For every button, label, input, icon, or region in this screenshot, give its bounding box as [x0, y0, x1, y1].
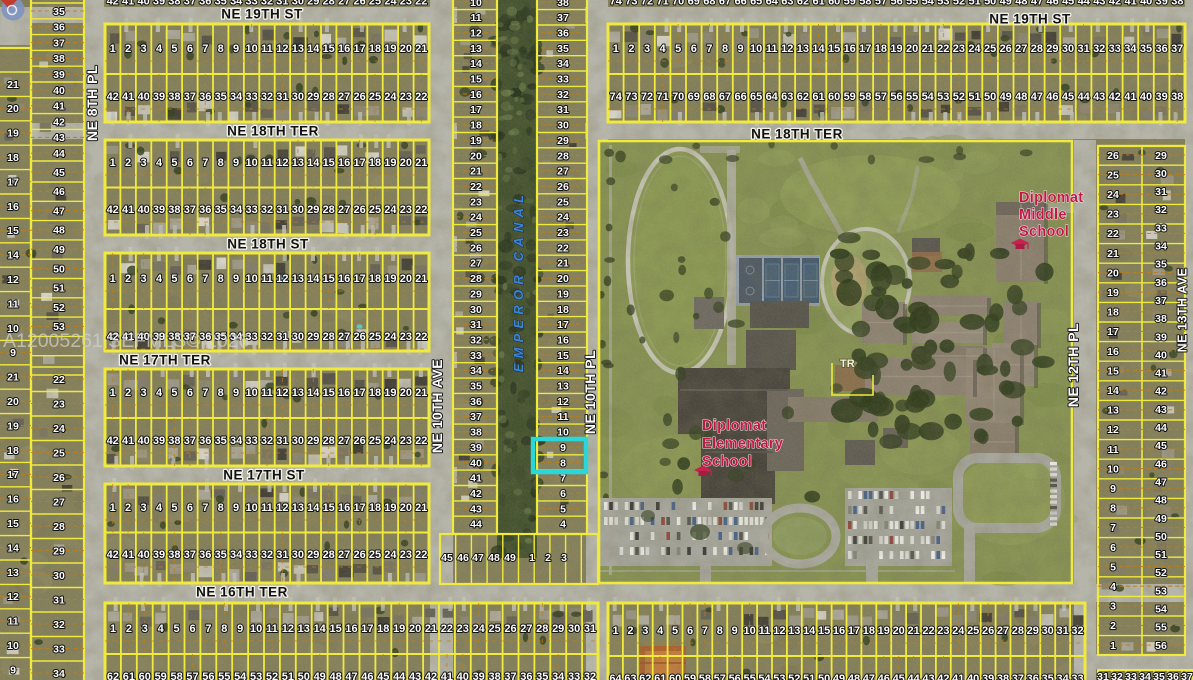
svg-text:11: 11	[261, 273, 273, 285]
svg-text:29: 29	[552, 623, 564, 635]
svg-text:9: 9	[738, 43, 744, 55]
svg-text:25: 25	[53, 447, 65, 459]
svg-text:15: 15	[818, 625, 830, 637]
svg-text:40: 40	[1140, 0, 1152, 8]
svg-text:16: 16	[345, 623, 357, 635]
svg-text:40: 40	[1155, 349, 1167, 361]
svg-text:21: 21	[415, 273, 427, 285]
svg-text:25: 25	[557, 196, 569, 208]
svg-text:50: 50	[984, 0, 996, 8]
svg-text:NE 17TH TER: NE 17TH TER	[119, 353, 211, 368]
svg-text:32: 32	[261, 91, 273, 103]
svg-text:4: 4	[657, 625, 664, 637]
svg-text:37: 37	[1012, 673, 1024, 680]
svg-text:4: 4	[156, 43, 163, 55]
svg-text:58: 58	[699, 673, 711, 680]
svg-text:34: 34	[53, 668, 65, 680]
svg-text:37: 37	[184, 204, 196, 216]
svg-text:45: 45	[441, 552, 453, 564]
svg-text:35: 35	[557, 43, 569, 55]
svg-text:12: 12	[470, 28, 482, 40]
svg-text:41: 41	[122, 435, 134, 447]
svg-text:18: 18	[7, 445, 19, 457]
svg-text:32: 32	[557, 89, 569, 101]
svg-text:39: 39	[470, 442, 482, 454]
svg-text:28: 28	[536, 623, 548, 635]
svg-text:24: 24	[384, 91, 397, 103]
svg-text:27: 27	[470, 258, 482, 270]
svg-text:17: 17	[353, 273, 365, 285]
svg-text:12: 12	[1107, 424, 1119, 436]
svg-text:5: 5	[672, 625, 678, 637]
svg-text:1: 1	[529, 552, 535, 564]
svg-text:14: 14	[7, 542, 19, 554]
svg-text:53: 53	[250, 671, 262, 680]
svg-text:15: 15	[1107, 365, 1119, 377]
svg-text:43: 43	[53, 132, 65, 144]
svg-text:41: 41	[1155, 368, 1167, 380]
svg-text:30: 30	[53, 570, 65, 582]
svg-text:9: 9	[560, 442, 566, 454]
svg-text:17: 17	[353, 43, 365, 55]
svg-text:16: 16	[470, 89, 482, 101]
svg-text:24: 24	[384, 204, 397, 216]
svg-text:15: 15	[7, 518, 19, 530]
svg-text:37: 37	[1171, 43, 1183, 55]
svg-text:14: 14	[7, 250, 19, 262]
svg-text:39: 39	[153, 0, 165, 8]
svg-text:49: 49	[314, 671, 326, 680]
svg-text:52: 52	[266, 671, 278, 680]
svg-text:43: 43	[470, 503, 482, 515]
svg-text:2: 2	[1110, 620, 1116, 632]
svg-text:54: 54	[922, 91, 935, 103]
svg-text:19: 19	[878, 625, 890, 637]
svg-text:18: 18	[470, 120, 482, 132]
svg-text:15: 15	[557, 350, 569, 362]
svg-text:23: 23	[557, 227, 569, 239]
svg-text:50: 50	[1155, 531, 1167, 543]
svg-text:Diplomat: Diplomat	[702, 418, 766, 434]
svg-text:22: 22	[415, 549, 427, 561]
svg-text:13: 13	[788, 625, 800, 637]
svg-text:63: 63	[781, 0, 793, 8]
svg-text:26: 26	[353, 435, 365, 447]
svg-text:13: 13	[292, 43, 304, 55]
svg-text:48: 48	[1155, 495, 1167, 507]
svg-text:28: 28	[323, 435, 335, 447]
svg-text:32: 32	[1071, 625, 1083, 637]
svg-text:38: 38	[168, 435, 180, 447]
svg-text:20: 20	[400, 387, 412, 399]
svg-text:33: 33	[245, 91, 257, 103]
svg-text:68: 68	[703, 0, 715, 8]
svg-text:7: 7	[202, 157, 208, 169]
svg-text:30: 30	[292, 331, 304, 343]
svg-text:23: 23	[400, 204, 412, 216]
svg-text:34: 34	[470, 365, 482, 377]
svg-text:40: 40	[1140, 91, 1152, 103]
svg-text:8: 8	[560, 457, 566, 469]
svg-text:45: 45	[1155, 440, 1167, 452]
svg-text:14: 14	[1107, 385, 1119, 397]
svg-text:30: 30	[568, 623, 580, 635]
svg-text:41: 41	[122, 549, 134, 561]
svg-text:9: 9	[233, 157, 239, 169]
svg-text:48: 48	[1015, 91, 1027, 103]
svg-text:26: 26	[353, 549, 365, 561]
svg-text:36: 36	[1155, 277, 1167, 289]
svg-text:17: 17	[859, 43, 871, 55]
svg-text:7: 7	[202, 387, 208, 399]
svg-text:24: 24	[384, 549, 397, 561]
svg-text:15: 15	[323, 157, 335, 169]
svg-text:14: 14	[307, 157, 320, 169]
svg-text:31: 31	[557, 104, 569, 116]
svg-text:School: School	[702, 454, 752, 470]
svg-text:16: 16	[1107, 346, 1119, 358]
svg-text:12: 12	[276, 502, 288, 514]
svg-text:47: 47	[1031, 0, 1043, 8]
svg-text:10: 10	[1107, 463, 1119, 475]
svg-text:11: 11	[557, 411, 568, 423]
svg-text:45: 45	[377, 671, 389, 680]
svg-text:29: 29	[307, 91, 319, 103]
svg-text:40: 40	[967, 673, 979, 680]
svg-text:25: 25	[967, 625, 979, 637]
svg-text:25: 25	[984, 43, 996, 55]
svg-text:5: 5	[174, 623, 180, 635]
svg-text:41: 41	[470, 473, 482, 485]
svg-text:42: 42	[1109, 0, 1121, 8]
svg-text:41: 41	[1124, 0, 1136, 8]
svg-text:55: 55	[906, 91, 918, 103]
svg-text:34: 34	[1124, 43, 1137, 55]
svg-text:1: 1	[110, 623, 116, 635]
svg-text:23: 23	[53, 398, 65, 410]
svg-text:40: 40	[53, 85, 65, 97]
svg-text:47: 47	[345, 671, 357, 680]
svg-text:45: 45	[1062, 91, 1074, 103]
svg-text:52: 52	[1155, 567, 1167, 579]
svg-text:44: 44	[470, 519, 482, 531]
svg-text:1: 1	[110, 43, 116, 55]
svg-text:16: 16	[844, 43, 856, 55]
svg-text:31: 31	[276, 91, 288, 103]
svg-text:14: 14	[307, 273, 320, 285]
svg-text:7: 7	[1110, 522, 1116, 534]
svg-text:44: 44	[1077, 91, 1090, 103]
svg-text:43: 43	[922, 673, 934, 680]
svg-text:29: 29	[307, 331, 319, 343]
svg-text:47: 47	[472, 552, 484, 564]
svg-text:31: 31	[276, 549, 288, 561]
svg-text:5: 5	[171, 387, 177, 399]
svg-text:2: 2	[125, 502, 131, 514]
svg-text:21: 21	[557, 258, 569, 270]
svg-text:14: 14	[803, 625, 816, 637]
svg-text:49: 49	[53, 244, 65, 256]
svg-text:16: 16	[833, 625, 845, 637]
svg-text:33: 33	[1125, 671, 1137, 680]
svg-text:35: 35	[1042, 673, 1054, 680]
svg-text:35: 35	[1153, 671, 1165, 680]
svg-text:9: 9	[233, 273, 239, 285]
svg-text:19: 19	[557, 288, 569, 300]
svg-text:36: 36	[199, 549, 211, 561]
svg-text:20: 20	[400, 273, 412, 285]
svg-text:10: 10	[245, 273, 257, 285]
svg-text:24: 24	[557, 212, 569, 224]
svg-text:24: 24	[968, 43, 981, 55]
svg-text:24: 24	[473, 623, 486, 635]
svg-text:16: 16	[338, 502, 350, 514]
svg-text:21: 21	[470, 166, 482, 178]
svg-text:19: 19	[393, 623, 405, 635]
svg-text:37: 37	[184, 549, 196, 561]
svg-text:36: 36	[199, 435, 211, 447]
svg-text:39: 39	[1155, 331, 1167, 343]
svg-text:24: 24	[384, 331, 397, 343]
svg-text:20: 20	[7, 103, 19, 115]
svg-text:26: 26	[982, 625, 994, 637]
svg-text:19: 19	[470, 135, 482, 147]
svg-text:70: 70	[672, 0, 684, 8]
svg-text:4: 4	[156, 157, 163, 169]
svg-text:20: 20	[906, 43, 918, 55]
svg-text:NE 18TH TER: NE 18TH TER	[227, 124, 319, 139]
svg-text:12: 12	[282, 623, 294, 635]
svg-text:3: 3	[642, 625, 648, 637]
svg-text:30: 30	[470, 304, 482, 316]
svg-text:42: 42	[1109, 91, 1121, 103]
svg-text:45: 45	[893, 673, 905, 680]
svg-text:3: 3	[561, 552, 567, 564]
svg-text:27: 27	[338, 204, 350, 216]
svg-text:12: 12	[276, 387, 288, 399]
svg-text:50: 50	[298, 671, 310, 680]
svg-text:10: 10	[250, 623, 262, 635]
svg-text:1: 1	[110, 157, 116, 169]
svg-text:41: 41	[441, 671, 453, 680]
svg-text:67: 67	[719, 91, 731, 103]
svg-text:25: 25	[369, 331, 381, 343]
svg-text:30: 30	[557, 120, 569, 132]
svg-text:33: 33	[470, 350, 482, 362]
svg-text:25: 25	[369, 435, 381, 447]
svg-text:29: 29	[307, 549, 319, 561]
svg-text:37: 37	[470, 411, 482, 423]
svg-text:22: 22	[557, 242, 569, 254]
svg-text:58: 58	[170, 671, 182, 680]
svg-text:27: 27	[338, 0, 350, 8]
svg-text:14: 14	[557, 365, 569, 377]
svg-text:11: 11	[7, 298, 18, 310]
svg-text:3: 3	[141, 273, 147, 285]
svg-text:NE 17TH ST: NE 17TH ST	[223, 468, 305, 483]
svg-text:18: 18	[369, 502, 381, 514]
svg-text:22: 22	[415, 0, 427, 8]
svg-text:16: 16	[7, 494, 19, 506]
svg-text:51: 51	[803, 673, 815, 680]
svg-text:27: 27	[1015, 43, 1027, 55]
svg-text:12: 12	[7, 274, 19, 286]
svg-text:11: 11	[470, 12, 481, 24]
svg-text:53: 53	[773, 673, 785, 680]
svg-text:41: 41	[1124, 91, 1136, 103]
svg-text:17: 17	[353, 502, 365, 514]
svg-text:1: 1	[110, 502, 116, 514]
svg-text:3: 3	[142, 623, 148, 635]
svg-text:13: 13	[292, 387, 304, 399]
svg-text:7: 7	[202, 43, 208, 55]
svg-text:15: 15	[329, 623, 341, 635]
svg-text:33: 33	[1071, 673, 1083, 680]
svg-text:51: 51	[1155, 549, 1167, 561]
svg-text:32: 32	[1111, 671, 1123, 680]
svg-text:32: 32	[261, 549, 273, 561]
svg-text:25: 25	[369, 204, 381, 216]
svg-text:6: 6	[187, 502, 193, 514]
svg-text:8: 8	[218, 157, 224, 169]
svg-text:1: 1	[1110, 640, 1116, 652]
svg-text:46: 46	[1046, 91, 1058, 103]
svg-text:62: 62	[797, 91, 809, 103]
svg-text:33: 33	[557, 74, 569, 86]
svg-text:18: 18	[369, 273, 381, 285]
svg-text:15: 15	[323, 502, 335, 514]
svg-text:49: 49	[1000, 91, 1012, 103]
svg-text:6: 6	[187, 273, 193, 285]
svg-text:32: 32	[53, 619, 65, 631]
svg-text:71: 71	[656, 91, 668, 103]
svg-text:16: 16	[338, 157, 350, 169]
svg-text:30: 30	[292, 435, 304, 447]
svg-text:37: 37	[184, 435, 196, 447]
svg-text:13: 13	[470, 43, 482, 55]
svg-text:26: 26	[353, 0, 365, 8]
svg-text:22: 22	[922, 625, 934, 637]
svg-text:38: 38	[470, 427, 482, 439]
svg-text:33: 33	[53, 643, 65, 655]
svg-text:39: 39	[153, 549, 165, 561]
svg-text:6: 6	[187, 387, 193, 399]
svg-text:4: 4	[156, 387, 163, 399]
svg-text:40: 40	[137, 435, 149, 447]
svg-text:21: 21	[7, 372, 19, 384]
svg-text:15: 15	[323, 273, 335, 285]
svg-text:35: 35	[215, 549, 227, 561]
svg-text:35: 35	[536, 671, 548, 680]
svg-text:12: 12	[773, 625, 785, 637]
svg-text:44: 44	[1078, 0, 1091, 8]
svg-text:73: 73	[625, 91, 637, 103]
svg-text:66: 66	[734, 0, 746, 8]
svg-text:5: 5	[560, 503, 566, 515]
svg-text:25: 25	[369, 91, 381, 103]
svg-text:1: 1	[110, 387, 116, 399]
svg-text:33: 33	[245, 549, 257, 561]
svg-text:2: 2	[125, 387, 131, 399]
svg-text:21: 21	[415, 502, 427, 514]
svg-text:64: 64	[609, 673, 622, 680]
svg-text:6: 6	[187, 43, 193, 55]
svg-text:35: 35	[215, 435, 227, 447]
svg-text:8: 8	[717, 625, 723, 637]
svg-text:7: 7	[560, 473, 566, 485]
svg-text:20: 20	[893, 625, 905, 637]
svg-text:38: 38	[168, 549, 180, 561]
svg-text:32: 32	[1093, 43, 1105, 55]
svg-text:1: 1	[110, 273, 116, 285]
svg-text:72: 72	[641, 91, 653, 103]
svg-text:55: 55	[218, 671, 230, 680]
svg-text:46: 46	[1155, 458, 1167, 470]
svg-text:26: 26	[353, 204, 365, 216]
svg-text:23: 23	[400, 331, 412, 343]
svg-text:49: 49	[833, 673, 845, 680]
svg-text:8: 8	[1110, 503, 1116, 515]
svg-text:26: 26	[504, 623, 516, 635]
svg-text:9: 9	[237, 623, 243, 635]
svg-text:School: School	[1019, 224, 1069, 240]
svg-text:11: 11	[766, 43, 778, 55]
svg-text:17: 17	[353, 157, 365, 169]
svg-text:41: 41	[122, 204, 134, 216]
svg-text:55: 55	[1155, 622, 1167, 634]
svg-text:4: 4	[560, 519, 566, 531]
svg-text:22: 22	[937, 43, 949, 55]
svg-text:57: 57	[875, 0, 887, 8]
svg-text:39: 39	[153, 91, 165, 103]
svg-text:22: 22	[441, 623, 453, 635]
svg-text:70: 70	[672, 91, 684, 103]
svg-text:10: 10	[7, 640, 19, 652]
svg-text:34: 34	[1056, 673, 1069, 680]
svg-text:36: 36	[470, 396, 482, 408]
svg-text:48: 48	[329, 671, 341, 680]
svg-text:28: 28	[323, 204, 335, 216]
svg-text:42: 42	[53, 116, 65, 128]
svg-text:22: 22	[415, 204, 427, 216]
svg-text:21: 21	[415, 43, 427, 55]
svg-text:7: 7	[706, 43, 712, 55]
svg-text:4: 4	[156, 502, 163, 514]
svg-text:20: 20	[1107, 267, 1119, 279]
svg-text:20: 20	[400, 502, 412, 514]
svg-text:21: 21	[7, 79, 19, 91]
svg-text:NE 19TH ST: NE 19TH ST	[221, 7, 303, 22]
svg-text:53: 53	[937, 0, 949, 8]
svg-text:27: 27	[53, 496, 65, 508]
svg-text:30: 30	[292, 549, 304, 561]
svg-text:55: 55	[906, 0, 918, 8]
svg-text:8: 8	[218, 502, 224, 514]
svg-text:13: 13	[292, 273, 304, 285]
svg-text:43: 43	[1093, 0, 1105, 8]
svg-text:34: 34	[1139, 671, 1151, 680]
svg-text:10: 10	[743, 625, 755, 637]
svg-text:63: 63	[781, 91, 793, 103]
svg-text:50: 50	[984, 91, 996, 103]
svg-text:14: 14	[307, 387, 320, 399]
svg-text:38: 38	[53, 53, 65, 65]
svg-text:3: 3	[1110, 601, 1116, 613]
svg-text:49: 49	[504, 552, 516, 564]
svg-text:36: 36	[1027, 673, 1039, 680]
svg-text:32: 32	[261, 331, 273, 343]
svg-text:26: 26	[470, 242, 482, 254]
